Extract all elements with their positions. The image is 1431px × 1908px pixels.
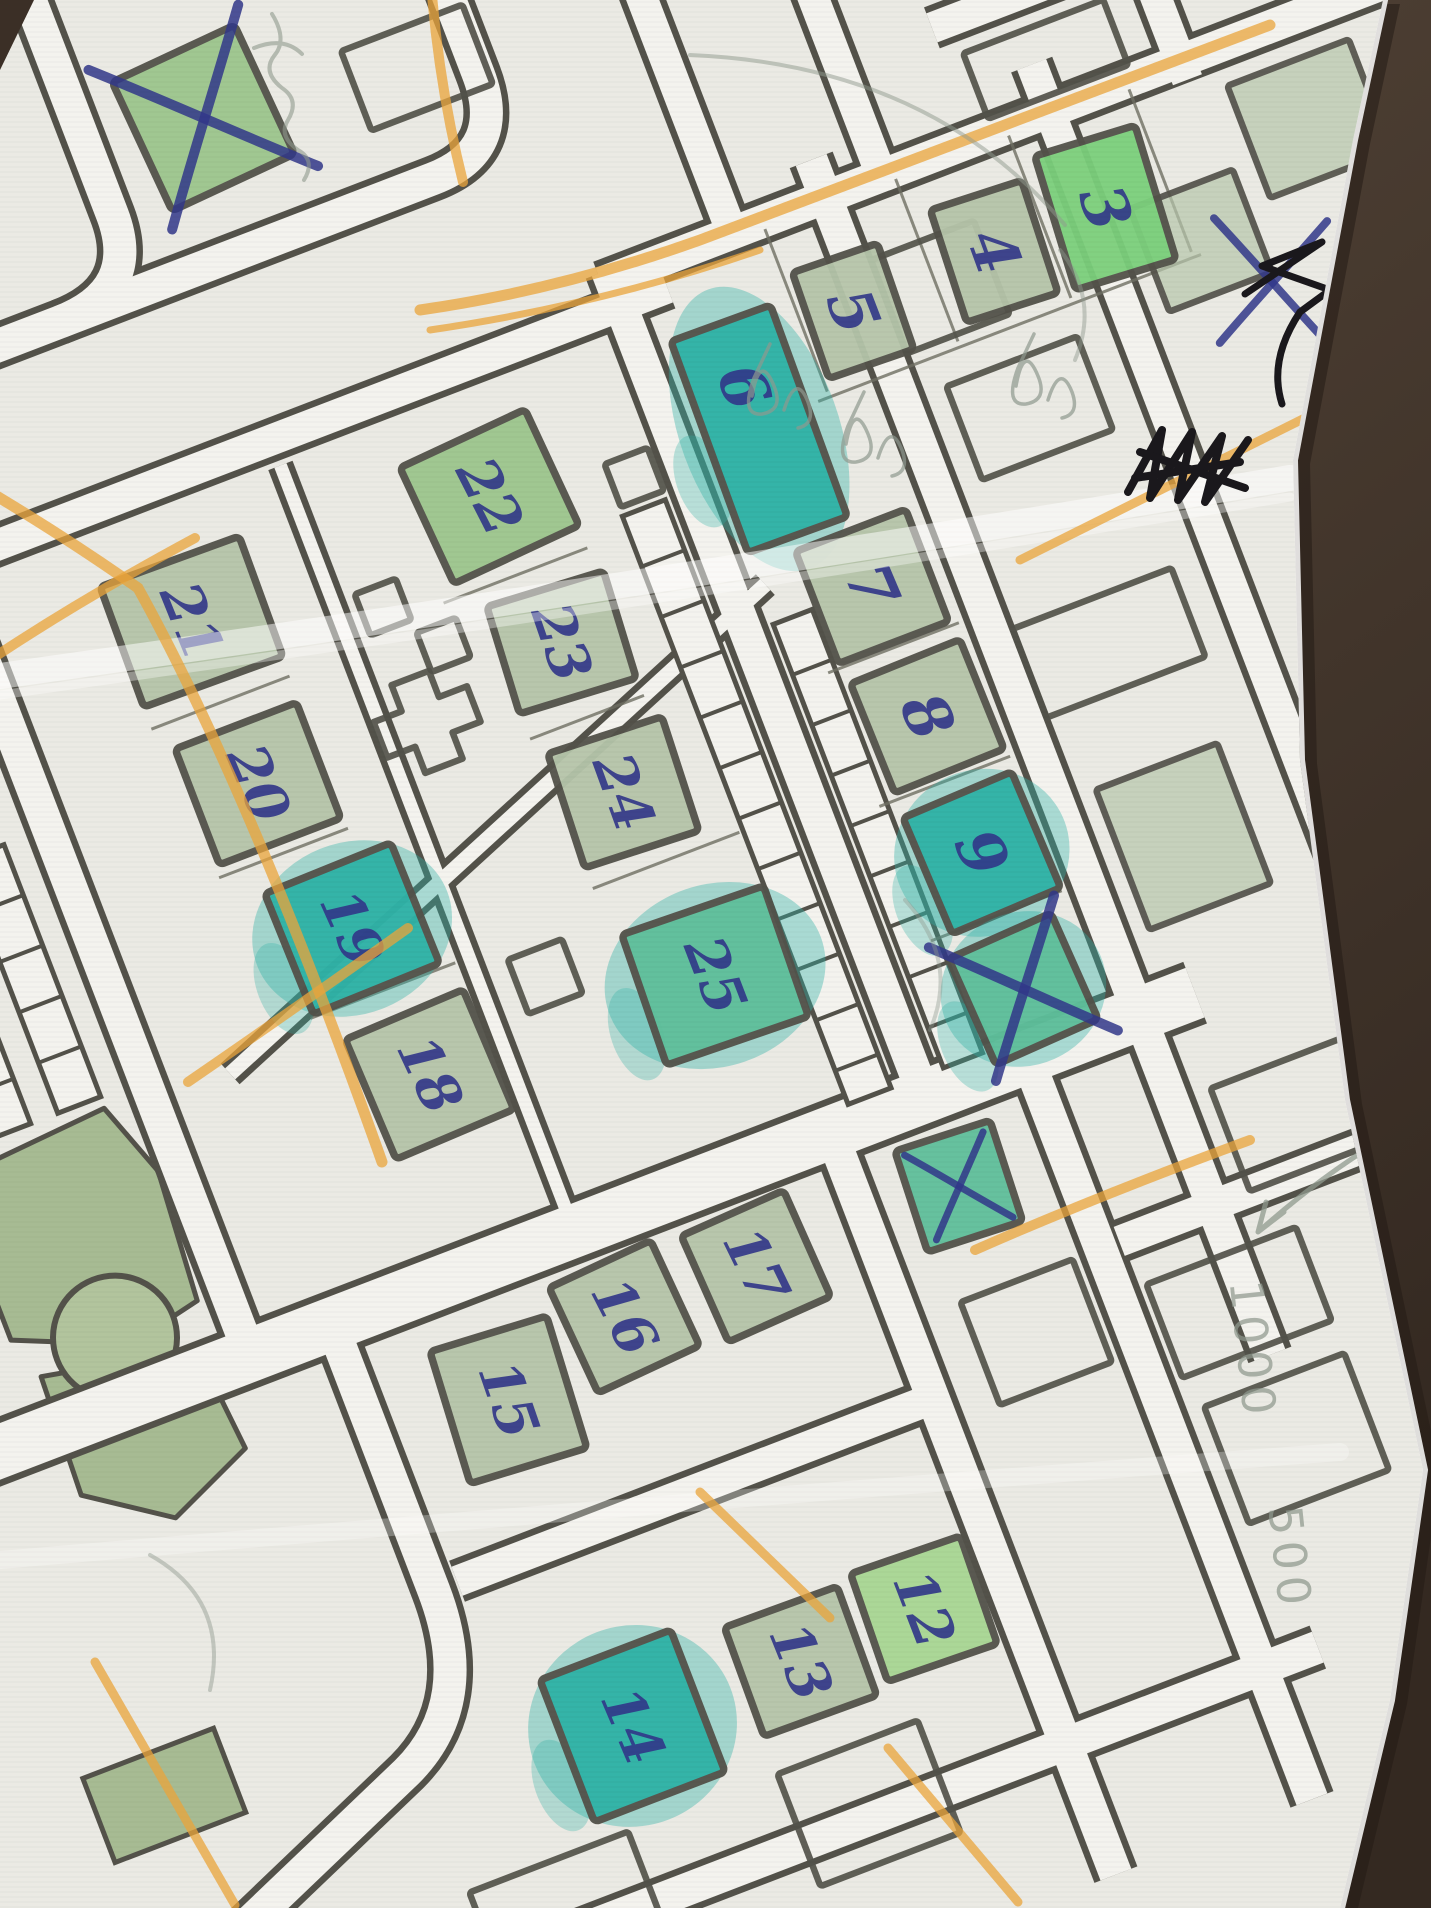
photo-of-paper-map: { "scene": { "background_top": "#5c4c3e"… [0,0,1431,1908]
pencil-scale-note: 500 [1258,1503,1323,1614]
map-photo: 34567892223242521201918171615121314 [0,0,1431,1908]
paper-grain [0,0,1431,1908]
